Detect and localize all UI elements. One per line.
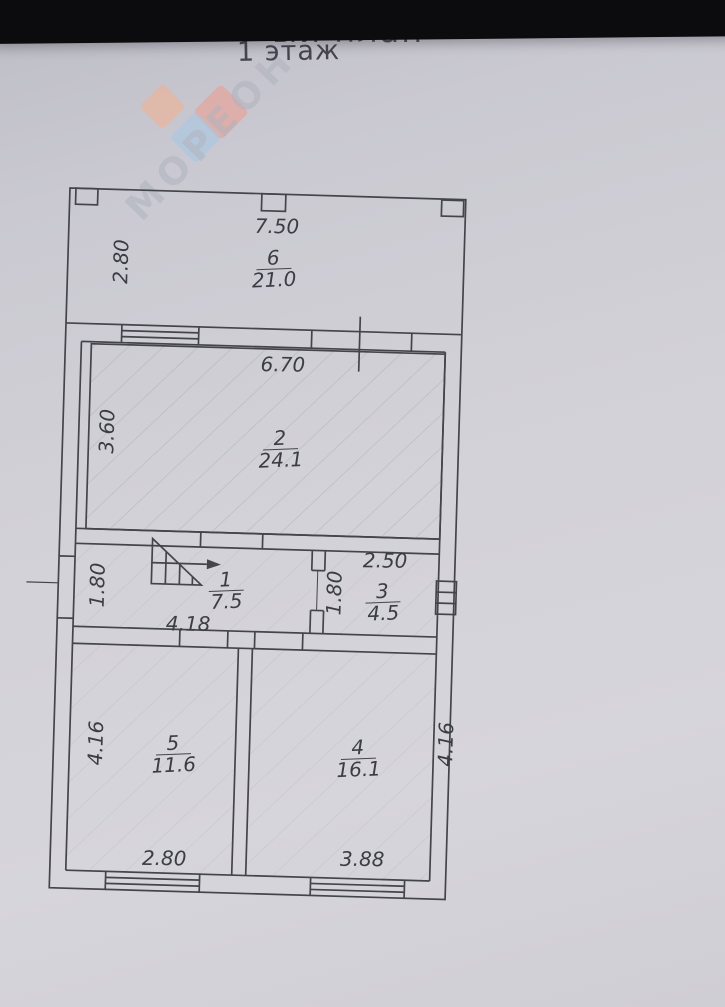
room-label-1: 1 7.5 xyxy=(208,569,244,613)
dim-room5-width: 2.80 xyxy=(142,846,187,871)
room-area: 4.5 xyxy=(366,602,402,624)
room-area: 11.6 xyxy=(151,754,196,777)
dim-room3-height: 1.80 xyxy=(321,570,346,615)
dim-room4-height: 4.16 xyxy=(433,722,458,767)
room-label-2: 2 24.1 xyxy=(257,427,303,472)
dim-room5-height: 4.16 xyxy=(83,720,108,765)
dim-room2-height: 3.60 xyxy=(94,409,119,454)
top-dark-bar xyxy=(0,0,725,44)
room-label-6: 6 21.0 xyxy=(251,247,297,292)
floor-plan: 7.50 2.80 6.70 3.60 1.80 4.18 2.50 1.80 … xyxy=(17,167,509,921)
room-label-3: 3 4.5 xyxy=(365,580,401,624)
left-wall-ticks xyxy=(25,555,75,618)
watermark-diamond-orange-icon xyxy=(139,83,186,130)
dim-room2-width: 6.70 xyxy=(260,352,305,377)
room-area: 7.5 xyxy=(209,591,245,613)
room-label-5: 5 11.6 xyxy=(150,732,196,777)
room-area: 16.1 xyxy=(336,758,381,781)
dim-veranda-width: 7.50 xyxy=(255,214,300,239)
dim-room4-width: 3.88 xyxy=(340,847,385,872)
room-area: 21.0 xyxy=(251,269,296,292)
dim-room1-width: 4.18 xyxy=(166,611,211,636)
dim-veranda-height: 2.80 xyxy=(108,239,133,284)
room-label-4: 4 16.1 xyxy=(335,736,381,781)
dim-room1-height: 1.80 xyxy=(85,562,110,607)
room-area: 24.1 xyxy=(258,449,303,472)
dim-room3-width: 2.50 xyxy=(363,548,408,573)
